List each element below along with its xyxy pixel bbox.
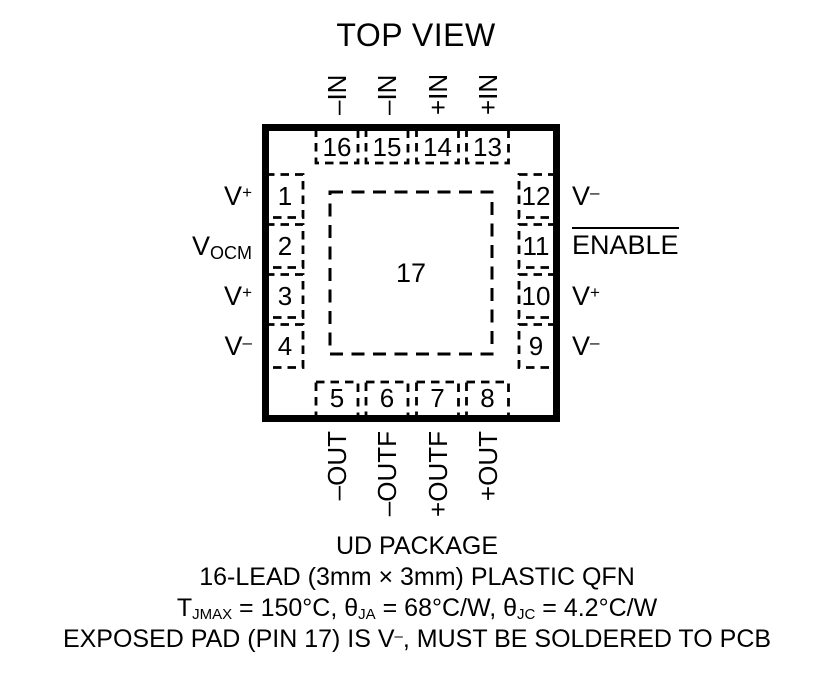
pin-number-5: 5 xyxy=(315,382,359,414)
pin-label-10-vplus: V+ xyxy=(572,279,600,313)
label-superscript: + xyxy=(590,283,600,302)
exposed-note-superscript: – xyxy=(395,628,403,645)
label-text: V xyxy=(192,231,210,261)
exposed-note-start: EXPOSED PAD (PIN 17) IS V xyxy=(63,625,395,653)
pin-number-4: 4 xyxy=(263,330,307,362)
pin-label-14-plus-in: +IN xyxy=(424,45,452,115)
label-text: V xyxy=(572,181,590,211)
pin-label-2-vocm: VOCM xyxy=(192,229,252,263)
label-text: V xyxy=(572,331,590,361)
label-text: V xyxy=(224,281,242,311)
thermal-theta1: θ xyxy=(344,594,358,622)
pin-label-5-minus-out: –OUT xyxy=(323,431,351,521)
thermal-sub-jmax: JMAX xyxy=(192,606,232,623)
thermal-ja-value: = 68°C/W, xyxy=(376,594,503,622)
label-superscript: + xyxy=(242,283,252,302)
thermal-sub-ja: JA xyxy=(358,606,376,623)
label-subscript: OCM xyxy=(210,243,252,263)
label-text: V xyxy=(572,281,590,311)
pin-number-12: 12 xyxy=(514,180,558,212)
pin-label-16-minus-in: –IN xyxy=(323,45,351,115)
pin-number-1: 1 xyxy=(263,180,307,212)
label-superscript: – xyxy=(590,333,599,352)
thermal-tjmax-value: = 150°C, xyxy=(232,594,344,622)
footer-package-desc: 16-LEAD (3mm × 3mm) PLASTIC QFN xyxy=(2,562,830,593)
footer-thermal-specs: TJMAX = 150°C, θJA = 68°C/W, θJC = 4.2°C… xyxy=(2,593,830,624)
pin-number-2: 2 xyxy=(263,230,307,262)
label-superscript: – xyxy=(243,333,252,352)
footer-notes: UD PACKAGE 16-LEAD (3mm × 3mm) PLASTIC Q… xyxy=(2,531,830,655)
pin-number-14: 14 xyxy=(416,131,460,163)
pin-label-6-minus-outf: –OUTF xyxy=(373,431,401,521)
thermal-t: T xyxy=(177,594,192,622)
pin-label-8-plus-out: +OUT xyxy=(474,431,502,521)
pin-number-6: 6 xyxy=(365,382,409,414)
pin-number-8: 8 xyxy=(466,382,510,414)
thermal-sub-jc: JC xyxy=(517,606,535,623)
pin-number-3: 3 xyxy=(263,280,307,312)
pin-number-7: 7 xyxy=(416,382,460,414)
footer-package-name: UD PACKAGE xyxy=(2,531,830,562)
label-superscript: – xyxy=(590,183,599,202)
pin-label-3-vplus: V+ xyxy=(224,279,252,313)
pin-label-13-plus-in: +IN xyxy=(474,45,502,115)
exposed-note-end: , MUST BE SOLDERED TO PCB xyxy=(403,625,771,653)
label-text-overlined: ENABLE xyxy=(572,227,679,259)
pinout-diagram: TOP VIEW 16 15 14 13 5 6 7 8 1 2 3 4 12 … xyxy=(0,0,830,675)
pin-label-15-minus-in: –IN xyxy=(373,45,401,115)
pin-label-7-plus-outf: +OUTF xyxy=(424,431,452,521)
pin-number-10: 10 xyxy=(514,280,558,312)
label-text: V xyxy=(225,331,243,361)
pin-number-13: 13 xyxy=(466,131,510,163)
pin-number-15: 15 xyxy=(365,131,409,163)
thermal-theta2: θ xyxy=(503,594,517,622)
pin-label-12-vminus: V– xyxy=(572,179,599,213)
pin-label-4-vminus: V– xyxy=(225,329,252,363)
thermal-jc-value: = 4.2°C/W xyxy=(535,594,657,622)
pin-label-1-vplus: V+ xyxy=(224,179,252,213)
pin-label-11-enable: ENABLE xyxy=(572,227,679,262)
pin-number-9: 9 xyxy=(514,330,558,362)
top-view-title: TOP VIEW xyxy=(0,17,830,53)
pin-label-9-vminus: V– xyxy=(572,329,599,363)
label-superscript: + xyxy=(242,183,252,202)
pin-number-16: 16 xyxy=(315,131,359,163)
exposed-pad-number: 17 xyxy=(381,257,441,289)
label-text: V xyxy=(224,181,242,211)
pin-number-11: 11 xyxy=(514,230,558,262)
footer-exposed-pad-note: EXPOSED PAD (PIN 17) IS V–, MUST BE SOLD… xyxy=(2,624,830,655)
